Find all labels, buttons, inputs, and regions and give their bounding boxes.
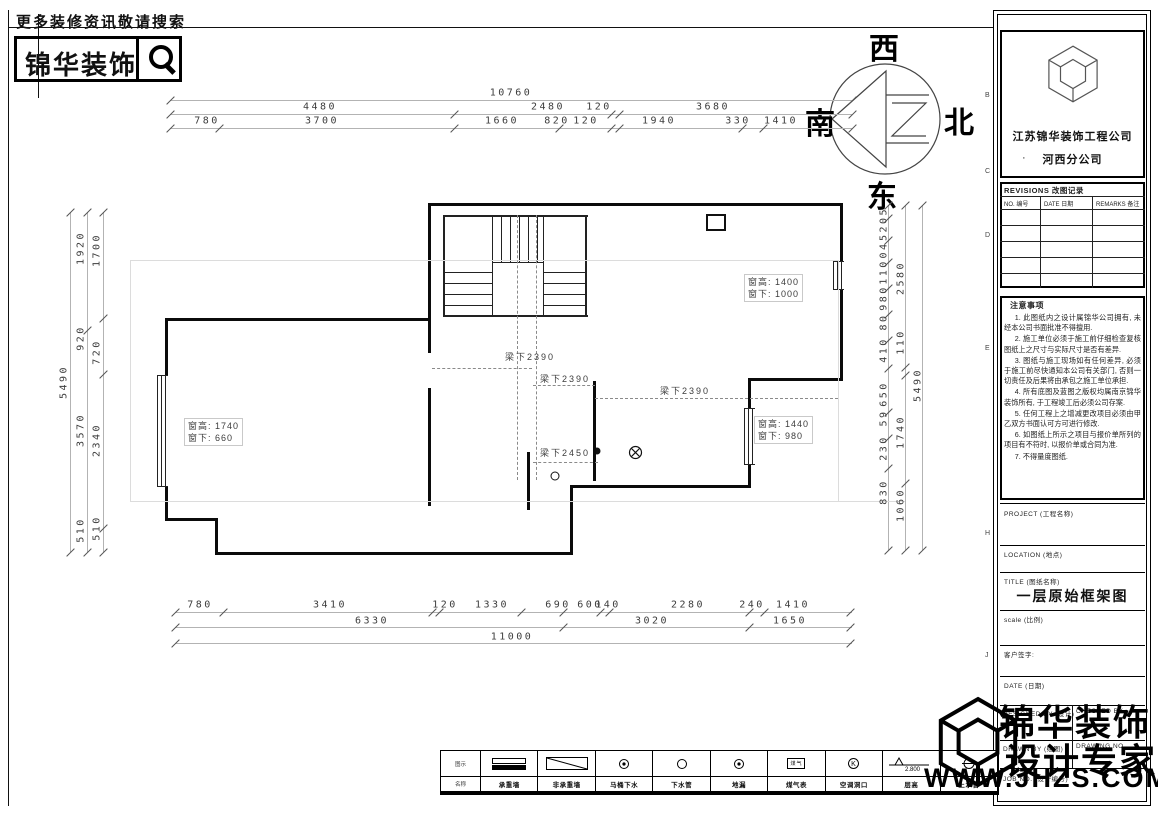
project-label: PROJECT (工程名称) bbox=[1004, 508, 1073, 518]
wall-segment bbox=[428, 203, 431, 320]
legend-item-name-text: 地漏 bbox=[732, 779, 746, 789]
dimension-label: 110 bbox=[896, 329, 907, 355]
dimension-label: 690 bbox=[545, 600, 571, 611]
legend-item-name-text: 下水管 bbox=[671, 779, 692, 789]
beam-line bbox=[517, 215, 518, 480]
title-label: TITLE (图纸名称) bbox=[1004, 576, 1060, 586]
reference-line bbox=[130, 260, 131, 501]
dimension-label: 1920 bbox=[76, 231, 87, 265]
legend-item-name: 承重墙 bbox=[481, 777, 538, 791]
window-sill-text: 窗下: 1000 bbox=[748, 288, 799, 300]
window-label: 窗高: 1440窗下: 980 bbox=[754, 416, 813, 444]
dimension-label: 1330 bbox=[475, 600, 509, 611]
pipe-circle-icon bbox=[550, 471, 560, 481]
legend-symbol-wall-diag-icon bbox=[538, 751, 595, 777]
stair-line bbox=[443, 215, 445, 317]
stair-line bbox=[443, 272, 492, 273]
window-sill-text: 窗下: 980 bbox=[758, 430, 809, 442]
brand-divider bbox=[136, 39, 139, 79]
legend-header-name: 名称 bbox=[441, 777, 481, 791]
wall-segment bbox=[840, 290, 843, 381]
dimension-label: 120 bbox=[432, 600, 458, 611]
beam-line bbox=[533, 462, 598, 463]
dimension-label: 3570 bbox=[76, 413, 87, 447]
flue-square bbox=[706, 214, 726, 231]
legend-item-name: 空调洞口 bbox=[826, 777, 883, 791]
dimension-label: 10760 bbox=[490, 88, 533, 99]
note-item: 2. 施工单位必须于施工前仔细检查复核图纸上之尺寸与实际尺寸是否有差异. bbox=[1004, 334, 1141, 354]
dimension-label: 1660 bbox=[485, 116, 519, 127]
note-item: 3. 图纸与施工现场如有任何差异, 必须于施工前尽快通知本公司有关部门, 否则一… bbox=[1004, 356, 1141, 387]
svg-text:2.800: 2.800 bbox=[905, 767, 921, 772]
dimension-label: 5205 bbox=[879, 207, 890, 241]
stair-line bbox=[543, 215, 544, 317]
legend-header-symbol-text: 图示 bbox=[455, 760, 466, 768]
wall-segment bbox=[428, 388, 431, 506]
compass-south-label: 南 bbox=[805, 99, 835, 143]
window-line bbox=[833, 261, 834, 290]
brand-name: 锦华装饰 bbox=[25, 45, 137, 82]
legend-item-name: 下水管 bbox=[653, 777, 710, 791]
window-label: 窗高: 1740窗下: 660 bbox=[184, 418, 243, 446]
window-line bbox=[157, 486, 168, 487]
dimension-label: 1700 bbox=[92, 233, 103, 267]
revisions-grid-line bbox=[1000, 196, 1145, 197]
floor-drain-icon bbox=[628, 445, 643, 460]
wall-segment bbox=[215, 518, 218, 555]
dimension-label: 830 bbox=[879, 479, 890, 505]
legend-symbol-gas-box-icon: 煤气 bbox=[768, 751, 825, 777]
wall-segment bbox=[840, 203, 843, 261]
dimension-label: 6330 bbox=[355, 616, 389, 627]
dimension-line bbox=[103, 212, 104, 552]
dimension-line bbox=[175, 643, 852, 644]
window-height-text: 窗高: 1440 bbox=[758, 418, 809, 430]
compass-west-label: 西 bbox=[869, 24, 899, 68]
stair-line bbox=[543, 283, 587, 284]
dimension-label: 59 bbox=[879, 409, 890, 426]
grid-reference-letter: C bbox=[985, 168, 990, 175]
stair-line bbox=[492, 215, 493, 317]
wall-segment bbox=[593, 381, 596, 481]
dimension-label: 780 bbox=[194, 116, 220, 127]
wall-segment bbox=[165, 518, 218, 521]
dimension-label: 510 bbox=[92, 515, 103, 541]
window-line bbox=[744, 408, 745, 465]
legend-symbol-wall-solid-icon bbox=[481, 751, 538, 777]
stair-line bbox=[443, 215, 588, 217]
location-label: LOCATION (地点) bbox=[1004, 549, 1062, 559]
window-line bbox=[744, 464, 755, 465]
dimension-label: 3680 bbox=[696, 102, 730, 113]
dimension-label: 120 bbox=[573, 116, 599, 127]
window-line bbox=[157, 375, 168, 376]
wall-segment bbox=[748, 378, 843, 381]
stair-line bbox=[543, 294, 587, 295]
grid-reference-letter: J bbox=[985, 652, 989, 659]
window-line bbox=[157, 375, 158, 487]
legend-item-name-text: 煤气表 bbox=[786, 779, 807, 789]
company-cube-logo-icon bbox=[1043, 44, 1103, 104]
dimension-label: 650 bbox=[879, 381, 890, 407]
company-name: 江苏锦华装饰工程公司 bbox=[1000, 128, 1145, 144]
stair-line bbox=[443, 283, 492, 284]
wall-segment bbox=[748, 381, 751, 408]
window-height-text: 窗高: 1740 bbox=[188, 420, 239, 432]
dimension-label: 230 bbox=[879, 435, 890, 461]
client-signature-label: 客户签字: bbox=[1004, 649, 1034, 659]
stair-line bbox=[543, 305, 587, 306]
dimension-label: 3020 bbox=[635, 616, 669, 627]
revisions-grid-line bbox=[1040, 196, 1041, 288]
stair-line bbox=[519, 215, 520, 263]
revisions-column-header: NO. 编号 bbox=[1004, 199, 1028, 208]
note-item: 6. 如图纸上所示之项目与报价单所列的项目有不符时, 以报价单或合同为准. bbox=[1004, 430, 1141, 450]
wall-segment bbox=[165, 318, 431, 321]
dimension-line bbox=[87, 212, 88, 552]
dimension-label: 780 bbox=[187, 600, 213, 611]
window-line bbox=[748, 408, 749, 465]
svg-text:K: K bbox=[852, 761, 857, 768]
reference-line bbox=[130, 260, 838, 261]
dimension-label: 720 bbox=[92, 339, 103, 365]
dimension-line bbox=[170, 100, 852, 101]
wall-segment bbox=[428, 317, 431, 353]
stair-line bbox=[501, 215, 502, 263]
wall-segment bbox=[428, 203, 843, 206]
revisions-grid-line bbox=[1092, 196, 1093, 288]
dimension-label: 2280 bbox=[671, 600, 705, 611]
note-item: 1. 此图纸内之设计属锦华公司拥有, 未经本公司书面批准不得擅用. bbox=[1004, 313, 1141, 333]
scale-label: scale (比例) bbox=[1004, 614, 1043, 624]
stair-line bbox=[528, 215, 529, 263]
dimension-label: 2580 bbox=[896, 261, 907, 295]
stair-line bbox=[443, 315, 588, 317]
legend-item-name-text: 承重墙 bbox=[499, 779, 520, 789]
drawing-title: 一层原始框架图 bbox=[1000, 586, 1145, 606]
dimension-label: 1060 bbox=[896, 488, 907, 522]
dimension-label: 80 bbox=[879, 313, 890, 330]
legend-item-name: 地漏 bbox=[711, 777, 768, 791]
wall-segment bbox=[165, 320, 168, 375]
beam-label: 梁下2390 bbox=[505, 350, 555, 363]
stair-line bbox=[443, 294, 492, 295]
beam-label: 梁下2450 bbox=[540, 446, 590, 459]
compass-north-label: 北 bbox=[944, 98, 974, 142]
dimension-label: 5490 bbox=[913, 368, 924, 402]
wall-segment bbox=[215, 552, 573, 555]
grid-reference-letter: D bbox=[985, 232, 990, 239]
dimension-label: 11000 bbox=[491, 632, 534, 643]
floorplan-sheet: { "header": { "search_hint": "更多装修资讯敬请搜索… bbox=[0, 0, 1158, 818]
dimension-label: 980 bbox=[879, 285, 890, 311]
date-label: DATE (日期) bbox=[1004, 680, 1045, 690]
legend-header-symbol: 图示 bbox=[441, 751, 481, 777]
revisions-grid-line bbox=[1000, 209, 1145, 210]
legend-table: 图示名称承重墙非承重墙马桶下水下水管地漏煤气煤气表K空调洞口2.800层高上水管 bbox=[440, 750, 999, 795]
legend-item-name-text: 空调洞口 bbox=[840, 779, 868, 789]
grid-reference-letter: H bbox=[985, 530, 990, 537]
dimension-label: 3700 bbox=[305, 116, 339, 127]
legend-symbol-circle-dot-icon bbox=[711, 751, 768, 777]
revisions-grid-line bbox=[1000, 225, 1145, 226]
dimension-label: 1740 bbox=[896, 415, 907, 449]
stair-line bbox=[585, 215, 587, 317]
dimension-label: 330 bbox=[725, 116, 751, 127]
revisions-column-header: REMARKS 备注 bbox=[1096, 199, 1139, 208]
dimension-label: 3410 bbox=[313, 600, 347, 611]
dimension-label: 1410 bbox=[776, 600, 810, 611]
dimension-label: 120 bbox=[586, 102, 612, 113]
reference-line bbox=[130, 501, 905, 502]
revisions-grid-line bbox=[1000, 273, 1145, 274]
dimension-label: 1410 bbox=[764, 116, 798, 127]
beam-label: 梁下2390 bbox=[540, 372, 590, 385]
dimension-label: 1650 bbox=[773, 616, 807, 627]
stair-line bbox=[537, 215, 538, 263]
notes-list: 1. 此图纸内之设计属锦华公司拥有, 未经本公司书面批准不得擅用.2. 施工单位… bbox=[1004, 313, 1141, 463]
window-line bbox=[841, 261, 842, 290]
dimension-label: 240 bbox=[739, 600, 765, 611]
legend-item-name-text: 层高 bbox=[904, 779, 918, 789]
note-item: 7. 不得量度图纸. bbox=[1004, 452, 1141, 462]
dimension-line bbox=[70, 212, 71, 552]
note-item: 5. 任何工程上之增减更改项目必须由甲乙双方书面认可方可进行修改. bbox=[1004, 409, 1141, 429]
wall-segment bbox=[570, 485, 751, 488]
revisions-grid-line bbox=[1000, 257, 1145, 258]
dimension-label: 4480 bbox=[303, 102, 337, 113]
note-item: 4. 所有底图及蓝图之版权均属南京锦华装饰所有, 于工程竣工后必须公司存案. bbox=[1004, 387, 1141, 407]
revisions-title: REVISIONS 改图记录 bbox=[1004, 185, 1084, 196]
wall-segment bbox=[570, 488, 573, 555]
dimension-label: 410 bbox=[879, 337, 890, 363]
window-line bbox=[744, 408, 755, 409]
beam-label: 梁下2390 bbox=[660, 384, 710, 397]
window-line bbox=[165, 375, 166, 487]
dimension-label: 140 bbox=[595, 600, 621, 611]
search-icon-handle bbox=[163, 62, 176, 75]
search-hint-text: 更多装修资讯敬请搜索 bbox=[16, 11, 186, 32]
branch-name: 河西分公司 bbox=[1000, 151, 1145, 167]
window-line bbox=[752, 408, 753, 465]
dimension-label: 5490 bbox=[59, 365, 70, 399]
window-label: 窗高: 1400窗下: 1000 bbox=[744, 274, 803, 302]
legend-symbol-circle-dot-icon bbox=[596, 751, 653, 777]
dimension-label: 510 bbox=[76, 517, 87, 543]
legend-item-name: 非承重墙 bbox=[538, 777, 595, 791]
sheet-left-border bbox=[8, 10, 9, 806]
beam-line bbox=[533, 385, 595, 386]
revisions-grid-line bbox=[1000, 241, 1145, 242]
revisions-column-header: DATE 日期 bbox=[1044, 199, 1073, 208]
legend-symbol-circle-k-icon: K bbox=[826, 751, 883, 777]
window-line bbox=[161, 375, 162, 487]
compass-icon bbox=[828, 62, 942, 176]
notes-title: 注意事项 bbox=[1010, 300, 1044, 311]
stair-line bbox=[443, 305, 492, 306]
legend-item-name-text: 非承重墙 bbox=[553, 779, 581, 789]
reference-line bbox=[838, 260, 839, 501]
dimension-label: 920 bbox=[76, 325, 87, 351]
dimension-label: 110 bbox=[879, 259, 890, 285]
brand-logo-box: 锦华装饰 bbox=[14, 36, 182, 82]
window-height-text: 窗高: 1400 bbox=[748, 276, 799, 288]
dimension-label: 1940 bbox=[642, 116, 676, 127]
legend-item-name: 煤气表 bbox=[768, 777, 825, 791]
dimension-label: 04 bbox=[879, 241, 890, 258]
dimension-label: 820 bbox=[544, 116, 570, 127]
legend-header-name-text: 名称 bbox=[455, 780, 466, 788]
wall-segment bbox=[165, 487, 168, 521]
beam-line bbox=[536, 215, 537, 480]
dimension-line bbox=[170, 128, 852, 129]
window-sill-text: 窗下: 660 bbox=[188, 432, 239, 444]
grid-reference-letter: B bbox=[985, 92, 990, 99]
watermark-url: WWW.JHZS.COM bbox=[924, 763, 1158, 794]
legend-item-name: 马桶下水 bbox=[596, 777, 653, 791]
stair-line bbox=[510, 215, 511, 263]
legend-item-name-text: 马桶下水 bbox=[610, 779, 638, 789]
beam-line bbox=[595, 398, 838, 399]
stair-line bbox=[543, 272, 587, 273]
dimension-label: 2480 bbox=[531, 102, 565, 113]
legend-symbol-circle-icon bbox=[653, 751, 710, 777]
grid-reference-letter: E bbox=[985, 345, 990, 352]
dimension-label: 2340 bbox=[92, 423, 103, 457]
